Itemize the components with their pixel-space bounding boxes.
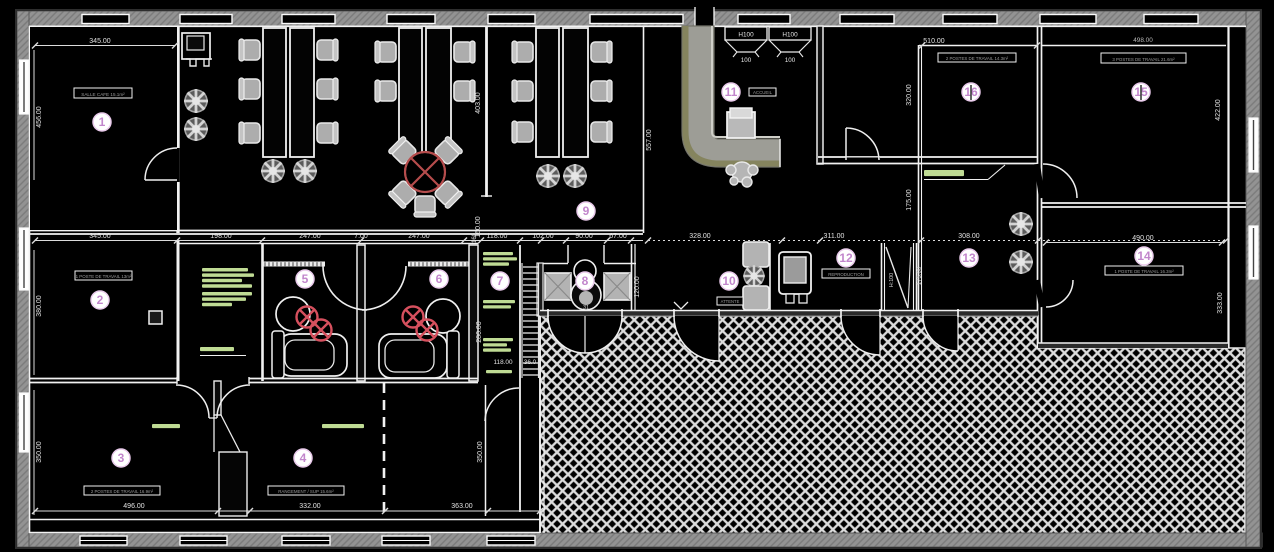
svg-text:90.00: 90.00 xyxy=(575,233,593,240)
svg-text:67.00: 67.00 xyxy=(609,233,627,240)
svg-text:1 POSTE DE TRAVAIL 16.3m²: 1 POSTE DE TRAVAIL 16.3m² xyxy=(1114,269,1174,274)
svg-text:2 POSTES DE TRAVAIL 14.3m²: 2 POSTES DE TRAVAIL 14.3m² xyxy=(946,56,1009,61)
svg-text:5: 5 xyxy=(302,272,309,286)
svg-text:8: 8 xyxy=(582,274,589,288)
svg-text:345.00: 345.00 xyxy=(89,38,111,45)
svg-text:H100: H100 xyxy=(782,32,798,39)
svg-text:403.00: 403.00 xyxy=(475,92,482,114)
svg-text:363.00: 363.00 xyxy=(451,503,473,510)
svg-text:350.00: 350.00 xyxy=(477,441,484,463)
svg-text:380.00: 380.00 xyxy=(36,295,43,317)
svg-text:498.00: 498.00 xyxy=(1133,37,1153,44)
svg-text:11: 11 xyxy=(725,85,738,99)
svg-text:1 POSTE DE TRAVAIL 13m²: 1 POSTE DE TRAVAIL 13m² xyxy=(76,274,132,279)
svg-text:557.00: 557.00 xyxy=(646,129,653,151)
svg-text:H100: H100 xyxy=(738,32,754,39)
svg-text:175.00: 175.00 xyxy=(917,266,923,285)
svg-text:31: 31 xyxy=(583,305,589,311)
svg-text:311.00: 311.00 xyxy=(824,233,845,240)
svg-text:9: 9 xyxy=(583,204,590,218)
svg-text:333.00: 333.00 xyxy=(1217,292,1224,314)
svg-text:14: 14 xyxy=(1137,249,1151,263)
svg-text:175.00: 175.00 xyxy=(906,189,913,211)
svg-text:12: 12 xyxy=(839,251,853,265)
svg-text:456.00: 456.00 xyxy=(36,106,43,128)
svg-text:345.00: 345.00 xyxy=(89,233,111,240)
svg-text:100: 100 xyxy=(741,57,752,64)
svg-text:308.00: 308.00 xyxy=(958,233,980,240)
svg-text:422.00: 422.00 xyxy=(1215,99,1222,121)
svg-text:510.00: 510.00 xyxy=(923,38,945,45)
svg-text:H:100: H:100 xyxy=(889,273,895,287)
svg-text:247.00: 247.00 xyxy=(408,233,430,240)
svg-text:100: 100 xyxy=(785,57,796,64)
svg-text:10: 10 xyxy=(722,274,736,288)
svg-text:1: 1 xyxy=(99,115,106,129)
svg-text:36.0: 36.0 xyxy=(524,359,537,366)
svg-text:350.00: 350.00 xyxy=(36,441,43,463)
svg-text:ATTENTE: ATTENTE xyxy=(721,299,740,304)
svg-text:3 POSTES DE TRAVAIL 21.6m²: 3 POSTES DE TRAVAIL 21.6m² xyxy=(1112,57,1175,62)
svg-text:7.00: 7.00 xyxy=(354,233,368,240)
svg-text:3: 3 xyxy=(118,451,125,465)
svg-text:ACCUEIL: ACCUEIL xyxy=(753,90,773,95)
svg-text:2: 2 xyxy=(97,293,104,307)
svg-text:REPRODUCTION: REPRODUCTION xyxy=(828,272,864,277)
svg-text:496.00: 496.00 xyxy=(123,503,145,510)
svg-text:2 POSTES DE TRAVAIL 16.9m²: 2 POSTES DE TRAVAIL 16.9m² xyxy=(91,489,154,494)
svg-text:198.00: 198.00 xyxy=(210,233,232,240)
svg-text:320.00: 320.00 xyxy=(906,84,913,106)
svg-text:118.00: 118.00 xyxy=(487,233,508,240)
svg-text:120.00: 120.00 xyxy=(634,276,641,298)
svg-text:247.00: 247.00 xyxy=(299,233,321,240)
svg-text:RANGEMENT / SUP 15.6m²: RANGEMENT / SUP 15.6m² xyxy=(278,489,334,494)
svg-text:13: 13 xyxy=(962,251,976,265)
svg-text:102.00: 102.00 xyxy=(532,233,554,240)
svg-text:332.00: 332.00 xyxy=(299,503,321,510)
svg-text:6: 6 xyxy=(436,272,443,286)
svg-text:SALLE CAFE 15.1m²: SALLE CAFE 15.1m² xyxy=(81,92,125,97)
svg-text:4: 4 xyxy=(300,451,307,465)
svg-text:160: 160 xyxy=(472,232,478,243)
svg-text:328.00: 328.00 xyxy=(689,233,711,240)
svg-text:118.00: 118.00 xyxy=(493,359,513,366)
svg-text:280.00: 280.00 xyxy=(476,321,483,343)
svg-text:7: 7 xyxy=(497,274,504,288)
